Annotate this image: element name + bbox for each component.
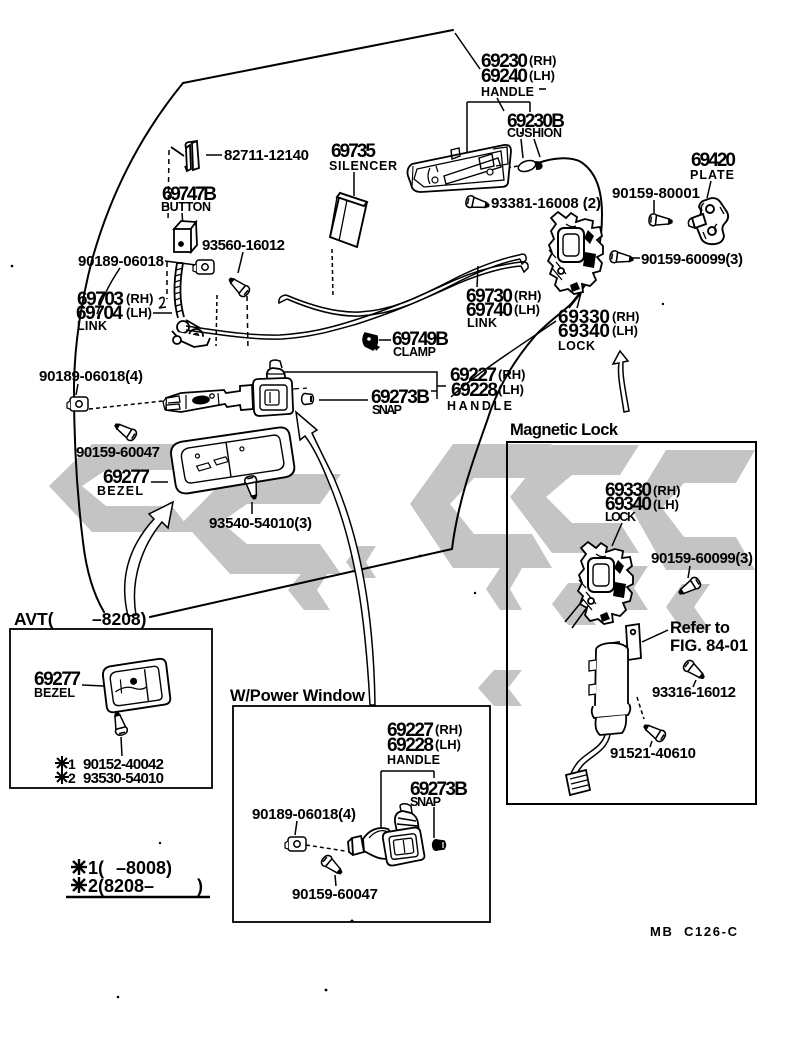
svg-text:90189-06018: 90189-06018: [78, 253, 164, 270]
svg-text:69228: 69228: [451, 380, 498, 401]
svg-text:BEZEL: BEZEL: [34, 686, 76, 700]
svg-text:2(8208–: 2(8208–: [88, 876, 154, 896]
svg-text:–8208): –8208): [92, 609, 147, 629]
svg-text:BEZEL: BEZEL: [97, 484, 144, 498]
svg-text:(RH): (RH): [514, 288, 541, 303]
svg-text:Magnetic Lock: Magnetic Lock: [510, 421, 619, 439]
svg-text:HANDLE: HANDLE: [481, 85, 535, 99]
svg-text:(LH): (LH): [653, 497, 679, 512]
svg-text:(LH): (LH): [514, 302, 540, 317]
svg-text:(LH): (LH): [126, 305, 152, 320]
svg-text:69240: 69240: [481, 66, 528, 87]
svg-text:90189-06018(4): 90189-06018(4): [39, 368, 143, 385]
svg-text:82711-12140: 82711-12140: [224, 147, 309, 164]
svg-text:BUTTON: BUTTON: [161, 200, 212, 214]
svg-text:(RH): (RH): [498, 367, 525, 382]
svg-text:93316-16012: 93316-16012: [652, 684, 736, 701]
svg-text:(RH): (RH): [612, 309, 639, 324]
svg-text:HANDLE: HANDLE: [447, 399, 513, 413]
svg-text:93381-16008 (2): 93381-16008 (2): [491, 195, 601, 212]
svg-text:91521-40610: 91521-40610: [610, 745, 696, 762]
svg-text:CLAMP: CLAMP: [393, 345, 437, 359]
svg-text:(LH): (LH): [498, 382, 524, 397]
svg-text:(LH): (LH): [612, 323, 638, 338]
svg-text:90159-60099(3): 90159-60099(3): [641, 251, 743, 268]
svg-text:90159-60099(3): 90159-60099(3): [651, 550, 753, 567]
svg-text:LOCK: LOCK: [558, 339, 596, 353]
svg-text:(RH): (RH): [529, 53, 556, 68]
svg-text:LINK: LINK: [77, 319, 108, 333]
svg-text:LOCK: LOCK: [605, 510, 637, 524]
svg-text:90189-06018(4): 90189-06018(4): [252, 806, 356, 823]
svg-text:(RH): (RH): [653, 483, 680, 498]
svg-text:93530-54010: 93530-54010: [83, 770, 164, 787]
svg-text:90159-60047: 90159-60047: [76, 444, 160, 461]
svg-text:HANDLE: HANDLE: [387, 753, 441, 767]
svg-text:FIG. 84-01: FIG. 84-01: [670, 637, 748, 655]
svg-text:): ): [197, 876, 203, 896]
svg-text:1(: 1(: [88, 858, 104, 878]
svg-text:Refer to: Refer to: [670, 619, 730, 637]
svg-text:(RH): (RH): [126, 291, 153, 306]
svg-text:LINK: LINK: [467, 316, 498, 330]
svg-text:(LH): (LH): [435, 737, 461, 752]
svg-text:SILENCER: SILENCER: [329, 159, 398, 173]
svg-text:PLATE: PLATE: [690, 168, 735, 182]
svg-text:AVT(: AVT(: [14, 609, 54, 629]
svg-text:2: 2: [68, 770, 76, 786]
svg-text:SNAP: SNAP: [372, 403, 403, 417]
svg-text:93560-16012: 93560-16012: [202, 237, 285, 254]
svg-text:(LH): (LH): [529, 68, 555, 83]
svg-text:93540-54010(3): 93540-54010(3): [209, 515, 312, 532]
svg-text:CUSHION: CUSHION: [507, 126, 563, 140]
svg-text:W/Power Window: W/Power Window: [230, 687, 365, 705]
svg-text:90159-60047: 90159-60047: [292, 886, 378, 903]
svg-text:(RH): (RH): [435, 722, 462, 737]
svg-text:SNAP: SNAP: [410, 795, 442, 809]
svg-text:–8008): –8008): [116, 858, 172, 878]
svg-text:90159-80001: 90159-80001: [612, 185, 700, 202]
svg-text:MB C126-C: MB C126-C: [650, 924, 738, 939]
